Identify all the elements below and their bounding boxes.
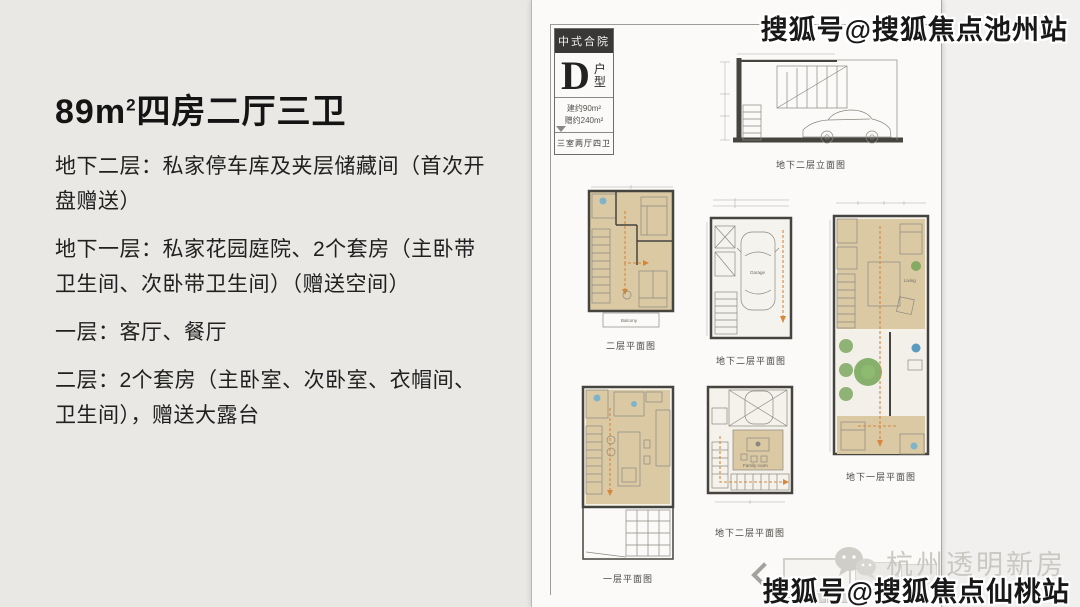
tree-icon — [839, 363, 853, 377]
floorplan-sheet: 中式合院 D 户型 建约90m² 赠约240m² 三室两厅四卫 — [531, 0, 942, 607]
unit-description-panel: 89m2四房二厅三卫 地下二层：私家停车库及夹层储藏间（首次开盘赠送） 地下一层… — [55, 84, 495, 446]
unit-letter: D — [561, 56, 590, 96]
balcony: Balcony — [603, 313, 659, 327]
bedroom-lower — [837, 416, 925, 454]
basement2-drawing: Garage — [705, 196, 797, 346]
plan-basement2: Garage 地下二层平面图 — [703, 196, 799, 367]
plan-basement2-mezzanine: Family room — [701, 382, 799, 539]
tree-icon — [839, 387, 853, 401]
floor-desc-basement2: 地下二层：私家停车库及夹层储藏间（首次开盘赠送） — [55, 149, 495, 219]
page-background: 89m2四房二厅三卫 地下二层：私家停车库及夹层储藏间（首次开盘赠送） 地下一层… — [0, 0, 1080, 607]
family-room: Family room — [733, 430, 783, 470]
page-title: 89m2四房二厅三卫 — [55, 84, 495, 133]
page-margin — [941, 0, 1080, 607]
basin-icon — [600, 198, 607, 205]
plan-caption: 地下二层立面图 — [713, 158, 909, 171]
tree-icon — [839, 339, 853, 353]
basement1-drawing: Living — [828, 200, 934, 462]
unit-letter-row: D 户型 — [555, 53, 613, 98]
plant-icon — [911, 261, 921, 271]
svg-text:Family room: Family room — [743, 463, 768, 468]
elevation-drawing — [715, 50, 907, 150]
plan-caption: 地下一层平面图 — [827, 470, 935, 483]
plan-caption: 地下二层平面图 — [701, 526, 799, 539]
plan-elevation-b2: 地下二层立面图 — [713, 50, 909, 171]
plan-caption: 地下二层平面图 — [703, 354, 799, 367]
svg-text:Garage: Garage — [750, 270, 766, 275]
basin-icon — [912, 344, 921, 353]
floor1-drawing — [578, 382, 678, 564]
plan-caption: 二层平面图 — [581, 339, 681, 352]
plan-floor1: 一层平面图 — [577, 382, 679, 585]
watermark-bottom: 搜狐号@搜狐焦点仙桃站 — [763, 570, 1070, 607]
unit-label-box: 中式合院 D 户型 建约90m² 赠约240m² 三室两厅四卫 — [554, 28, 614, 155]
stairs-lower — [743, 105, 761, 140]
floor-desc-floor1: 一层：客厅、餐厅 — [55, 315, 495, 350]
svg-text:Balcony: Balcony — [621, 318, 638, 323]
floor2-drawing: Balcony — [583, 185, 679, 331]
plan-basement1: Living — [827, 200, 935, 483]
svg-text:Living: Living — [904, 278, 916, 283]
stairs-upper — [777, 66, 847, 108]
paving-grid — [626, 510, 670, 556]
terrace — [583, 507, 673, 559]
unit-series-badge: 中式合院 — [555, 29, 613, 53]
basin-icon — [594, 395, 601, 402]
unit-rooms-label: 三室两厅四卫 — [555, 133, 613, 154]
watermark-top: 搜狐号@搜狐焦点池州站 — [761, 8, 1068, 47]
plan-caption: 一层平面图 — [577, 572, 679, 585]
floor-desc-floor2: 二层：2个套房（主卧室、次卧室、衣帽间、卫生间），赠送大露台 — [55, 363, 495, 433]
courtyard — [837, 332, 925, 416]
chevron-down-icon — [556, 126, 566, 132]
unit-type-label: 户型 — [593, 63, 607, 89]
unit-area-built: 建约90m² — [555, 103, 613, 115]
floor-desc-basement1: 地下一层：私家花园庭院、2个套房（主卧带卫生间、次卧带卫生间）（赠送空间） — [55, 232, 495, 302]
plan-floor2: Balcony 二层平面图 — [581, 185, 681, 352]
mezzanine-drawing: Family room — [703, 382, 797, 518]
